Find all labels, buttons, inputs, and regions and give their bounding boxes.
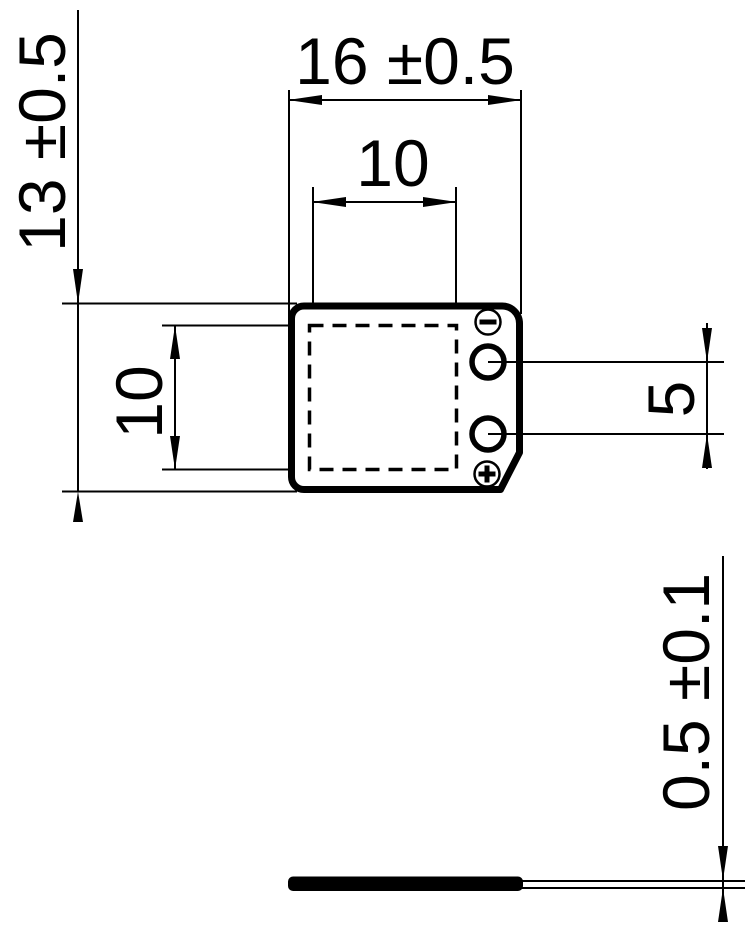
arrowhead-up-icon — [73, 492, 83, 523]
arrowhead-up-icon — [718, 888, 728, 922]
technical-drawing-canvas: 16 ±0.5 10 13 ±0.5 10 — [0, 0, 750, 946]
dimension-drawing: 16 ±0.5 10 13 ±0.5 10 — [0, 0, 750, 946]
front-view — [292, 306, 520, 490]
dim-element-height: 10 — [102, 326, 309, 470]
arrowhead-down-icon — [718, 846, 728, 880]
dim-body-width-label: 16 ±0.5 — [295, 24, 515, 98]
side-view-body-bar — [288, 877, 523, 892]
dim-terminal-spacing-label: 5 — [634, 381, 708, 418]
dim-thickness-label: 0.5 ±0.1 — [649, 573, 723, 811]
plus-symbol — [485, 466, 490, 483]
side-view — [288, 877, 745, 892]
arrowhead-down-icon — [170, 436, 180, 470]
dim-element-height-label: 10 — [102, 365, 176, 438]
dim-element-width: 10 — [312, 126, 457, 305]
dim-thickness: 0.5 ±0.1 — [649, 556, 728, 922]
arrowhead-up-icon — [170, 326, 180, 360]
arrowhead-down-icon — [702, 328, 712, 362]
arrowhead-left-icon — [312, 197, 346, 207]
minus-symbol — [480, 320, 497, 325]
dim-element-width-label: 10 — [356, 126, 429, 200]
dim-terminal-spacing: 5 — [488, 323, 724, 469]
dim-body-height-label: 13 ±0.5 — [5, 32, 79, 252]
arrowhead-down-icon — [73, 269, 83, 304]
dim-body-height: 13 ±0.5 — [5, 10, 297, 522]
arrowhead-up-icon — [702, 434, 712, 468]
